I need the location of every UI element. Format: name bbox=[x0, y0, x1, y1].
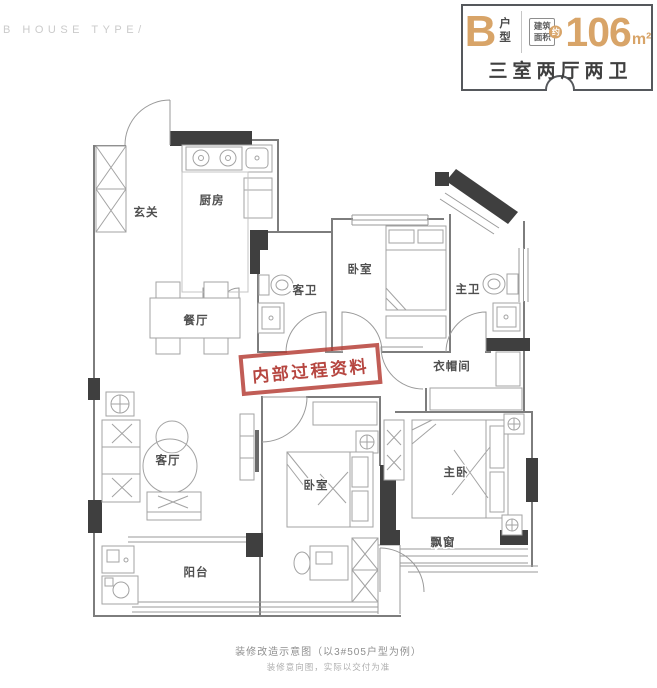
footer-line2: 装修意向图，实际以交付为准 bbox=[0, 661, 657, 673]
room-label-cloakroom: 衣帽间 bbox=[433, 359, 471, 373]
room-label-bay-window: 飘窗 bbox=[431, 535, 456, 549]
room-label-entry: 玄关 bbox=[134, 205, 159, 219]
room-label-bedroom3: 卧室 bbox=[304, 478, 329, 492]
floorplan-page: B HOUSE TYPE/ B 户型 建筑面积约 106 m² 三室两厅两卫 bbox=[0, 0, 657, 688]
footer-line1: 装修改造示意图（以3#505户型为例） bbox=[0, 643, 657, 658]
room-label-bedroom2: 卧室 bbox=[348, 262, 373, 276]
bedroom2-furniture bbox=[386, 226, 446, 338]
room-label-master-bath: 主卫 bbox=[456, 282, 481, 296]
guest-bath-fixtures bbox=[258, 275, 293, 333]
room-label-kitchen: 厨房 bbox=[200, 193, 225, 207]
floor-plan: 玄关 厨房 餐厅 客卫 卧室 主卫 衣帽间 客厅 卧室 主卧 飘窗 阳台 bbox=[0, 0, 657, 688]
room-label-guest-bath: 客卫 bbox=[292, 283, 318, 297]
master-bath-fixtures bbox=[483, 274, 520, 331]
hallway-cabinet bbox=[384, 420, 404, 480]
bedroom3-furniture bbox=[287, 402, 378, 602]
footer-captions: 装修改造示意图（以3#505户型为例） 装修意向图，实际以交付为准 bbox=[0, 643, 657, 673]
room-label-master-bedroom: 主卧 bbox=[444, 465, 469, 479]
room-label-living: 客厅 bbox=[155, 453, 181, 467]
room-label-dining: 餐厅 bbox=[183, 313, 209, 327]
room-label-balcony: 阳台 bbox=[184, 565, 209, 579]
living-furniture bbox=[102, 392, 259, 520]
entry-cabinet bbox=[96, 146, 126, 232]
balcony-appliances bbox=[102, 546, 138, 604]
